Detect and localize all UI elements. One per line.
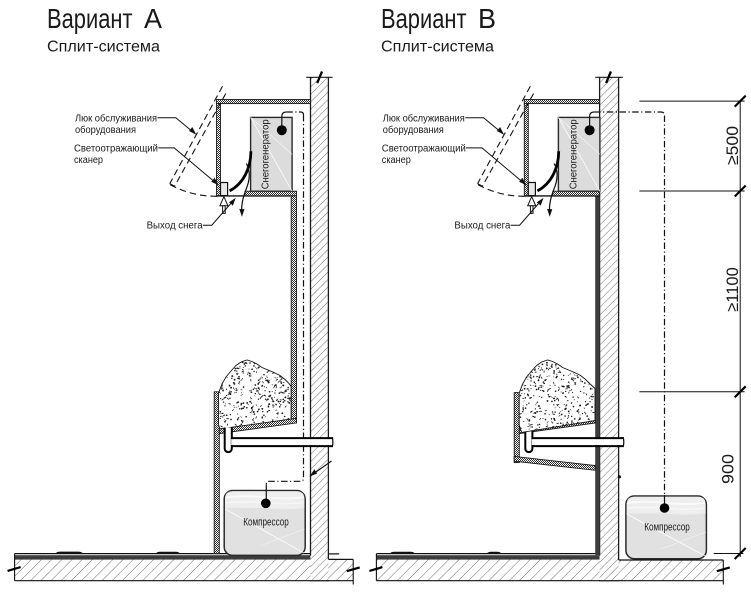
svg-text:Вариант: Вариант [47, 3, 133, 34]
svg-text:Люк обслуживания: Люк обслуживания [383, 112, 465, 124]
svg-text:Снегогенератор: Снегогенератор [568, 119, 579, 189]
svg-text:Светоотражающий: Светоотражающий [74, 144, 158, 155]
svg-text:Сплит-система: Сплит-система [381, 39, 494, 56]
svg-text:Компрессор: Компрессор [243, 517, 289, 529]
svg-text:Светоотражающий: Светоотражающий [382, 144, 466, 155]
svg-text:сканер: сканер [382, 155, 411, 166]
svg-text:Выход снега: Выход снега [147, 221, 203, 232]
svg-text:≥500: ≥500 [723, 126, 742, 165]
svg-text:≥1100: ≥1100 [723, 267, 742, 312]
svg-text:Выход снега: Выход снега [454, 221, 510, 232]
svg-text:Снегогенератор: Снегогенератор [261, 119, 272, 189]
svg-text:900: 900 [719, 454, 738, 484]
svg-text:оборудования: оборудования [75, 124, 136, 136]
svg-text:оборудования: оборудования [383, 124, 444, 136]
svg-text:Люк обслуживания: Люк обслуживания [75, 112, 157, 124]
svg-text:Компрессор: Компрессор [644, 522, 690, 534]
svg-text:В: В [478, 3, 496, 34]
svg-text:сканер: сканер [74, 155, 103, 166]
svg-text:Сплит-система: Сплит-система [47, 39, 160, 56]
svg-text:А: А [144, 3, 163, 34]
svg-text:Вариант: Вариант [381, 3, 467, 34]
